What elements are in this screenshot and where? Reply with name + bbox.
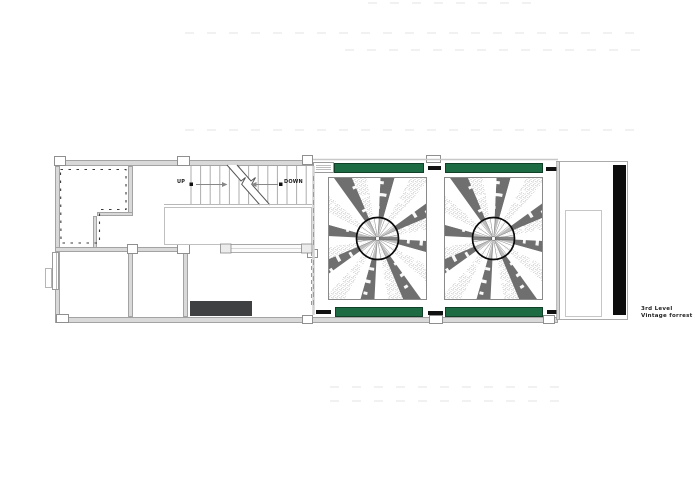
window-left-wall — [52, 252, 59, 290]
wall-left-exterior — [55, 166, 60, 317]
green-panel-bottom-2 — [445, 307, 543, 317]
stair-break-line — [237, 165, 270, 205]
column-marker — [54, 156, 66, 166]
right-room-inner-platform — [565, 210, 602, 317]
window-band-cap — [221, 244, 232, 253]
column-marker — [302, 315, 313, 324]
ghost-mark — [330, 400, 560, 402]
hall-room-outline — [165, 208, 312, 245]
accent-bar — [316, 310, 331, 314]
black-sidebar-element — [613, 165, 626, 315]
column-marker — [177, 156, 190, 166]
stair-up-label: UP — [177, 180, 185, 186]
wall-right-room-left — [556, 161, 560, 320]
balcony-ledge — [45, 268, 52, 288]
stair-break-mask — [227, 165, 270, 205]
stair-down-label: DOWN — [284, 180, 303, 186]
column-marker — [543, 315, 555, 324]
stair-break-line — [227, 165, 260, 205]
green-panel-bottom-1 — [335, 307, 423, 317]
detail-stamp-box — [313, 162, 334, 173]
window-band — [222, 245, 312, 253]
wall-mid-horizontal — [55, 247, 188, 252]
column-marker — [307, 249, 318, 258]
column-marker — [177, 244, 190, 254]
up-arrow-head — [222, 182, 228, 187]
column-marker — [127, 244, 138, 254]
sunburst-parquet-panel-1 — [328, 177, 427, 300]
accent-bar — [546, 167, 557, 171]
column-marker — [56, 314, 69, 323]
ghost-mark — [185, 32, 640, 34]
ghost-mark — [345, 49, 640, 51]
sheet-title-line2: Vintage forrest — [641, 313, 693, 319]
column-marker — [302, 155, 313, 165]
down-arrow-head — [251, 182, 257, 187]
column-marker — [429, 315, 443, 324]
floor-plan-sheet: UP DOWN 3rd Level Vintage forrest — [0, 0, 700, 495]
sunburst-parquet-panel-2 — [444, 177, 543, 300]
wall-notch-horizontal — [97, 212, 133, 216]
down-dot — [279, 183, 283, 187]
accent-bar — [428, 166, 441, 170]
column-marker — [426, 155, 441, 163]
wall-divider-2 — [183, 248, 188, 317]
sheet-title-line1: 3rd Level — [641, 306, 673, 312]
dark-counter-block — [190, 301, 252, 316]
ghost-mark — [185, 129, 640, 131]
wall-divider-1 — [128, 252, 133, 317]
up-dot — [190, 183, 194, 187]
ghost-mark — [330, 386, 560, 388]
green-panel-top-2 — [445, 163, 543, 173]
wall-room-right — [128, 166, 133, 216]
accent-bar — [428, 311, 443, 315]
accent-bar — [547, 310, 558, 314]
ghost-mark — [368, 2, 533, 4]
green-panel-top-1 — [334, 163, 424, 173]
